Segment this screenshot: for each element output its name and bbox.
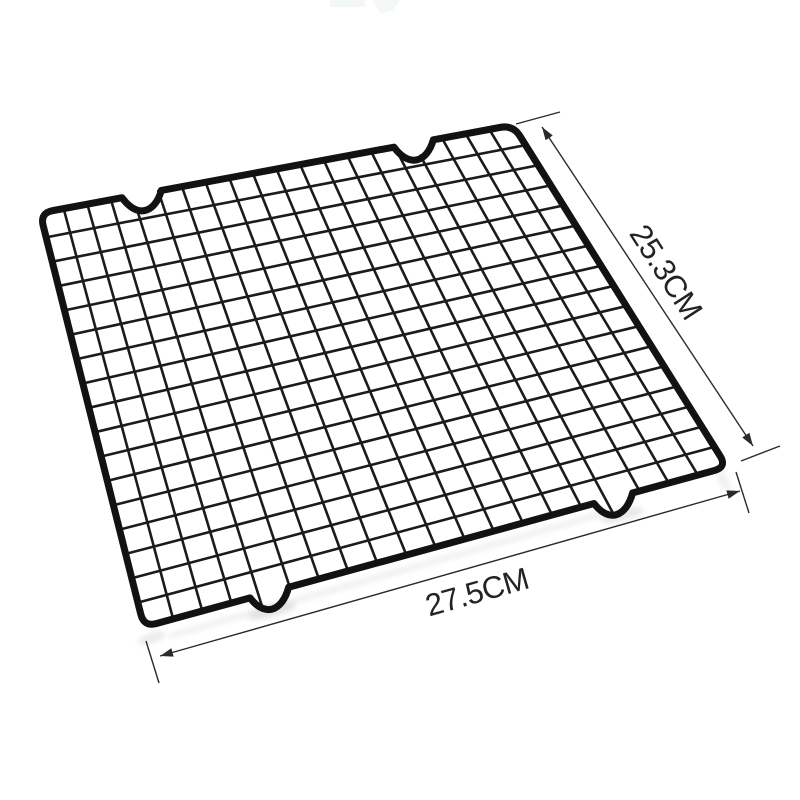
grid-wire [101, 326, 639, 456]
rack-shadow [170, 513, 605, 636]
dimension-arrow-icon [542, 127, 553, 140]
extension-line [736, 472, 749, 513]
photo-artifact [330, 0, 400, 13]
grid-wire [52, 165, 538, 261]
cooling-rack-product-image: 25.3CM 27.5CM [0, 0, 800, 800]
photo-artifact [330, 0, 365, 7]
grid-wire [95, 306, 626, 432]
grid-wire [138, 447, 715, 603]
grid-wire [46, 145, 525, 237]
cooling-rack [43, 127, 723, 624]
dimension-line-depth [542, 127, 753, 446]
width-dimension-label: 27.5CM [421, 561, 532, 624]
rack-shadow [136, 628, 168, 648]
depth-dimension-label: 25.3CM [623, 218, 710, 326]
dimension-arrow-icon [160, 648, 174, 656]
product-photo-canvas: 25.3CM 27.5CM [0, 0, 800, 800]
grid-wire [347, 156, 523, 523]
extension-line [741, 446, 780, 461]
dimension-arrow-icon [726, 490, 740, 498]
dimension-arrow-icon [742, 433, 753, 446]
photo-artifact [372, 0, 400, 13]
extension-line [146, 641, 159, 683]
extension-line [516, 112, 560, 124]
